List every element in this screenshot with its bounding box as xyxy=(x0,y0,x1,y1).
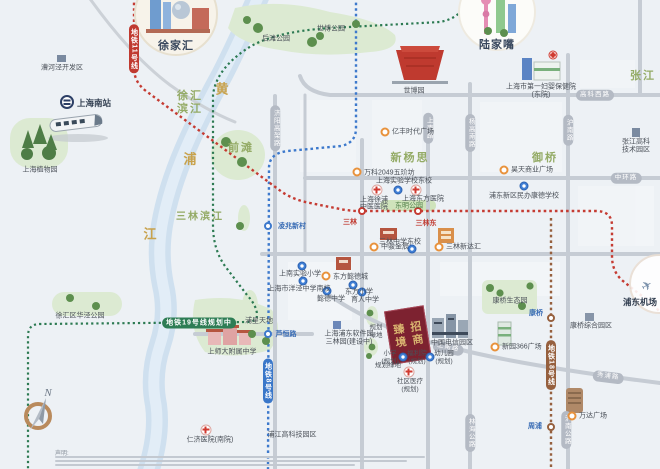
haotian-marker xyxy=(500,166,509,175)
metro-line-19-pill: 地铁19号线规划中 xyxy=(162,318,236,329)
train-graphic xyxy=(48,114,108,142)
poi-zhongjun: 中骏金辰 xyxy=(381,244,409,251)
poi-puxing-tiandi: 浦星天地 xyxy=(245,318,273,325)
xinyuan366-marker xyxy=(491,343,500,352)
telecom-park-buildings xyxy=(432,314,468,338)
road-gaokexi: 高科西路 xyxy=(576,90,614,101)
poi-zhangjiang-hitech-2: 技术园区 xyxy=(622,147,650,154)
poi-planned-primary-2: (规划) xyxy=(381,359,398,366)
poi-kangde-school: 浦东新区民办康德学校 xyxy=(489,193,559,200)
school-shangnan-dot xyxy=(298,262,307,271)
poi-yifeng-plaza: 亿丰时代广场 xyxy=(392,129,434,136)
poi-vanke2049: 万科2049五玠坊 xyxy=(364,170,415,177)
poi-software-park-1: 上海浦东软件园 xyxy=(325,331,374,338)
school-shiyan-dot xyxy=(394,186,403,195)
label-zhangjiang: 张江 xyxy=(630,67,656,83)
poi-dongfang-primary: 东方小学 xyxy=(345,289,373,296)
metro-line-18-pill: 地铁18号线 xyxy=(546,340,556,390)
road-yanggaonan: 杨高南路 xyxy=(465,114,475,152)
station-sanlindong-label: 三林东 xyxy=(416,218,437,228)
maternity-hospital-building xyxy=(522,51,560,80)
disclaimer-line xyxy=(55,464,355,466)
station-zhoupu-marker xyxy=(547,423,555,431)
hospital-renji-cross xyxy=(201,425,212,436)
poi-shanghai-south-station: 上海南站 xyxy=(77,99,111,108)
poi-maternity-hospital-2: (东院) xyxy=(532,92,551,99)
map-root: 徐家汇 陆家嘴 徐汇 滨江 前滩 三林滨江 新杨思 御桥 张江 浦东机场 ✈ 黄… xyxy=(0,0,660,469)
hospital-planned-cross xyxy=(404,367,415,378)
vanke2049-marker xyxy=(353,168,362,177)
poi-shangshida-school: 上师大附属中学 xyxy=(208,349,257,356)
poi-planned-green-1a: 规划 xyxy=(370,325,383,332)
school-yangjing-dot xyxy=(299,277,308,286)
hospital-dongfang-cross xyxy=(411,185,422,196)
poi-wanda-plaza: 万达广场 xyxy=(579,413,607,420)
label-xuhui-binjiang-2: 滨江 xyxy=(177,100,203,116)
yifeng-plaza-marker xyxy=(381,128,390,137)
trees xyxy=(21,16,534,359)
poi-caohejing: 漕河泾开发区 xyxy=(41,65,83,72)
poi-planned-kindergarten-2: (规划) xyxy=(435,359,452,366)
metro-line-8 xyxy=(268,0,356,469)
metro-lines xyxy=(28,0,660,469)
poi-xupu-hospital-2: 中医医院 xyxy=(360,204,388,211)
station-zhoupu-label: 周浦 xyxy=(528,421,542,431)
compass-north-label: N xyxy=(44,387,51,399)
station-lingzhao-label: 凌兆新村 xyxy=(278,221,306,231)
poi-renji-hospital: 仁济医院(南院) xyxy=(187,437,234,444)
poi-yide-school: 懿德中学 xyxy=(317,296,345,303)
poi-planned-kindergarten-1: 幼儿园 xyxy=(434,351,454,358)
label-qiantan: 前滩 xyxy=(228,139,254,155)
poi-software-park-2: 三林园(建设中) xyxy=(326,339,373,346)
poi-planned-green-1b: 绿地 xyxy=(370,333,383,340)
label-lujiazui: 陆家嘴 xyxy=(479,36,515,52)
river-char-jiang: 江 xyxy=(143,224,156,243)
expo-pavilion xyxy=(392,46,448,84)
poi-xupu-hospital-1: 上海徐浦 xyxy=(360,197,388,204)
station-luheng-label: 芦恒路 xyxy=(276,329,297,339)
poi-xinyuan366: 新园366广场 xyxy=(502,344,542,351)
road-jiyang: 济阳高架路 xyxy=(270,105,280,151)
river-char-pu: 浦 xyxy=(183,149,196,168)
label-sanlin-binjiang: 三林滨江 xyxy=(176,208,224,223)
poi-haotian-plaza: 昊天商业广场 xyxy=(511,167,553,174)
xindahui-marker xyxy=(435,243,444,252)
poi-shiyan-school: 上海实验学校东校 xyxy=(376,178,432,185)
compass-icon xyxy=(26,398,50,430)
river-char-huang: 黄 xyxy=(215,79,228,98)
zhongjun-marker xyxy=(370,243,379,252)
poi-expo-park: 世博公园 xyxy=(317,26,345,33)
poi-yangjing-school: 上海市洋泾中学南校 xyxy=(268,286,331,293)
poi-zhangjiang-hitech-1: 张江高科 xyxy=(622,139,650,146)
road-zhonghuan: 中环路 xyxy=(611,173,642,184)
station-kangqiao-label: 康桥 xyxy=(529,308,543,318)
poi-maternity-hospital: 上海市第一妇婴保健院 xyxy=(506,84,576,91)
label-pudong-airport: 浦东机场 xyxy=(623,298,657,307)
poi-xindahui: 三林新达汇 xyxy=(446,244,481,251)
road-hunan: 沪南路 xyxy=(563,115,573,146)
yidecheng-marker xyxy=(322,272,331,281)
poi-planned-welfare-1: 福利院 xyxy=(407,351,427,358)
label-xinyangsi: 新杨思 xyxy=(391,149,430,165)
label-xujiahui: 徐家汇 xyxy=(158,37,194,53)
poi-planned-clinic-2: (规划) xyxy=(401,387,418,394)
station-luheng-marker xyxy=(264,330,272,338)
poi-planned-clinic-1: 社区医疗 xyxy=(397,379,423,386)
poi-dongming-park: 东明公园 xyxy=(395,203,423,210)
railway-station-icon xyxy=(61,96,73,108)
poi-huajing-park: 徐汇区华泾公园 xyxy=(56,313,105,320)
poi-pujiang-hitech: 浦江高科技园区 xyxy=(268,432,317,439)
wanda-marker xyxy=(568,412,577,421)
poi-yuren-school: 育人中学 xyxy=(351,297,379,304)
school-planned-dot-1 xyxy=(399,353,408,362)
poi-shangnan-primary: 上南实验小学 xyxy=(279,271,321,278)
road-linhai: 林海公路 xyxy=(465,414,475,452)
poi-houtan-park: 后滩公园 xyxy=(262,36,290,43)
poi-yidecheng: 东方懿德城 xyxy=(333,274,368,281)
disclaimer-line xyxy=(55,460,407,462)
hospital-xupu-cross xyxy=(372,185,383,196)
map-canvas xyxy=(0,0,660,469)
school-kangde-dot xyxy=(520,182,529,191)
metro-line-8-pill: 地铁8号线 xyxy=(263,359,273,404)
poi-planned-primary-1: 小学 xyxy=(384,351,397,358)
station-sanlin-label: 三林 xyxy=(343,217,357,227)
poi-kangqiao-industrial: 康桥综合园区 xyxy=(570,323,612,330)
poi-botanical-garden: 上海植物园 xyxy=(23,167,58,174)
poi-expo-garden: 世博园 xyxy=(404,88,425,95)
disclaimer-line xyxy=(55,456,425,458)
metro-line-11-pill: 地铁11号线 xyxy=(129,24,139,73)
station-kangqiao-marker xyxy=(547,314,555,322)
poi-dongfang-hospital: 上海东方医院 xyxy=(402,196,444,203)
poi-kangqiao-eco-park: 康桥生态园 xyxy=(493,298,528,305)
label-yuqiao: 御桥 xyxy=(532,149,558,165)
station-lingzhao-marker xyxy=(264,222,272,230)
poi-telecom-park: 中国电信园区 xyxy=(431,340,473,347)
huangpu-river xyxy=(148,0,262,469)
poi-planned-welfare-2: (规划) xyxy=(408,359,425,366)
